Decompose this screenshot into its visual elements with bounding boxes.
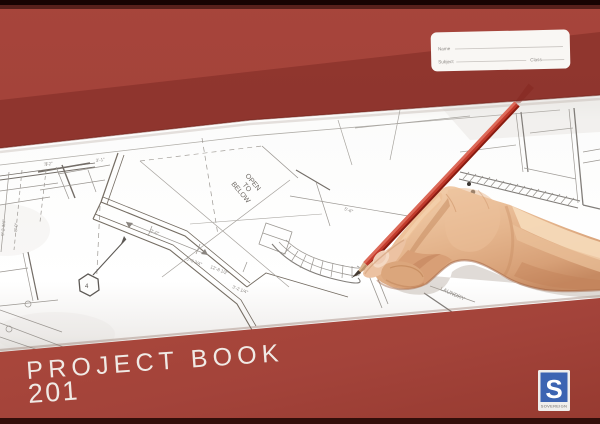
svg-text:Class: Class — [530, 57, 542, 62]
svg-text:8'-0": 8'-0" — [13, 222, 19, 232]
svg-text:SOVEREIGN: SOVEREIGN — [541, 404, 567, 409]
svg-text:Subject: Subject — [438, 59, 454, 64]
svg-text:201: 201 — [27, 375, 81, 409]
svg-text:S: S — [545, 374, 562, 404]
svg-text:Name: Name — [438, 46, 451, 51]
